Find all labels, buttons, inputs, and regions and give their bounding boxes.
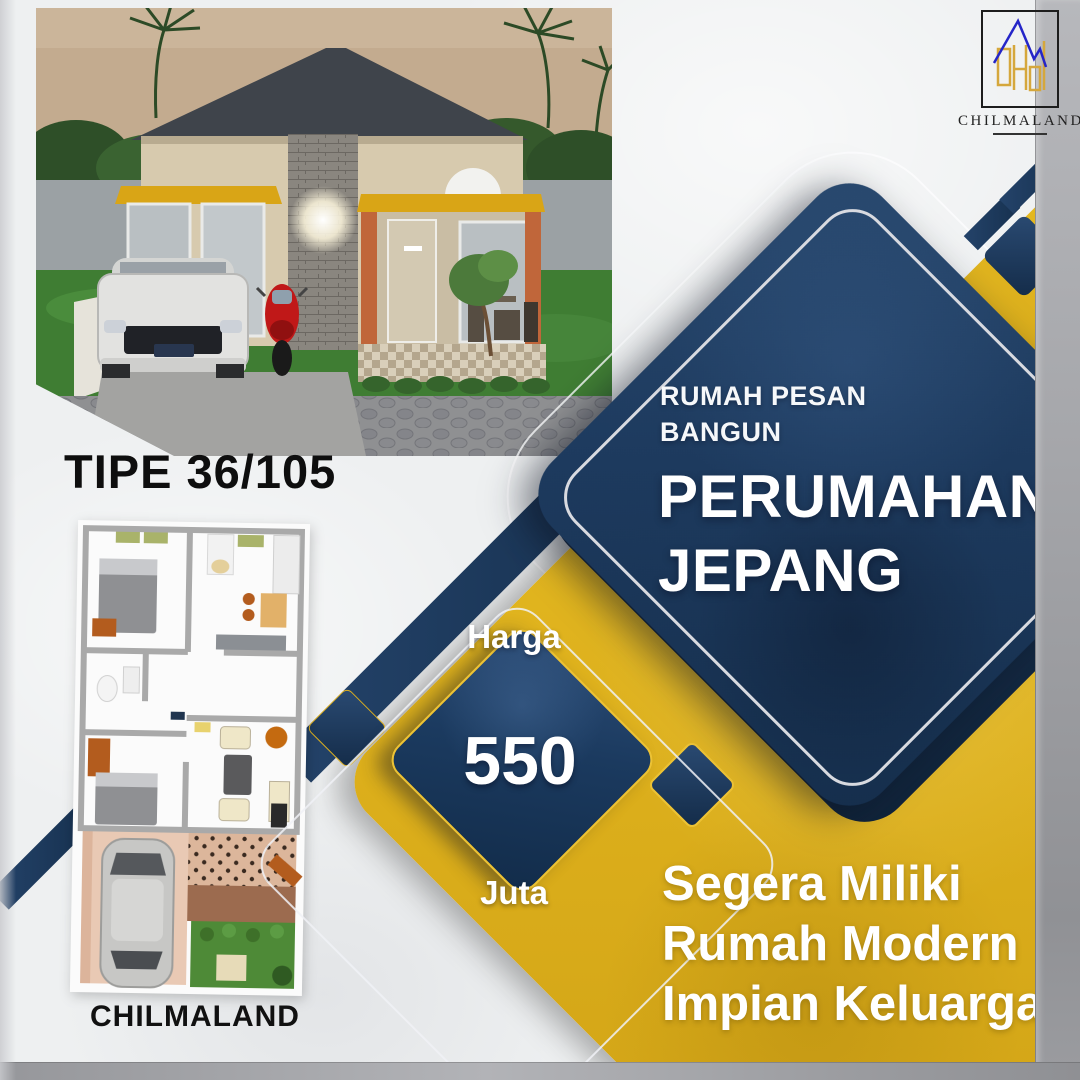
terrace-tiles xyxy=(358,344,546,382)
porch-pillar-left xyxy=(361,212,377,346)
brand-logo: CHILMALAND xyxy=(958,10,1080,135)
chilmaland-monogram-icon xyxy=(981,10,1059,108)
logo-underline xyxy=(993,133,1047,135)
price-label: Harga xyxy=(414,618,614,656)
wall-lamp-glow xyxy=(289,186,357,254)
right-edge-band xyxy=(1035,0,1080,1080)
kicker-line-1: RUMAH PESAN xyxy=(660,378,867,414)
price-unit: Juta xyxy=(414,874,614,912)
porch-awning xyxy=(357,194,545,212)
main-title: PERUMAHAN JEPANG xyxy=(658,460,1053,608)
title-line-1: PERUMAHAN xyxy=(658,460,1053,534)
front-door xyxy=(388,220,436,342)
logo-wordmark: CHILMALAND xyxy=(958,113,1080,130)
price-amount: 550 xyxy=(420,722,620,800)
floorplan-image xyxy=(70,520,310,996)
tagline-line-2: Rumah Modern xyxy=(662,914,1043,974)
tagline: Segera Miliki Rumah Modern Impian Keluar… xyxy=(662,854,1043,1034)
floorplan-scene xyxy=(70,520,310,996)
tagline-line-3: Impian Keluarga xyxy=(662,974,1043,1034)
house-render-photo xyxy=(36,8,612,456)
carport xyxy=(80,831,189,988)
left-edge-band xyxy=(0,0,16,1080)
bottom-edge-band xyxy=(0,1062,1080,1080)
house-type-label: TIPE 36/105 xyxy=(64,444,336,499)
footer-brand-name: CHILMALAND xyxy=(90,1000,300,1034)
white-car xyxy=(98,258,248,378)
kicker-text: RUMAH PESAN BANGUN xyxy=(660,378,867,450)
real-estate-poster: CHILMALAND TIPE 36/105 RUMAH PESAN BANGU… xyxy=(0,0,1080,1080)
tagline-line-1: Segera Miliki xyxy=(662,854,1043,914)
title-line-2: JEPANG xyxy=(658,534,1053,608)
kicker-line-2: BANGUN xyxy=(660,414,867,450)
house-scene xyxy=(36,8,612,456)
left-awning xyxy=(115,186,282,204)
garden xyxy=(190,921,295,989)
